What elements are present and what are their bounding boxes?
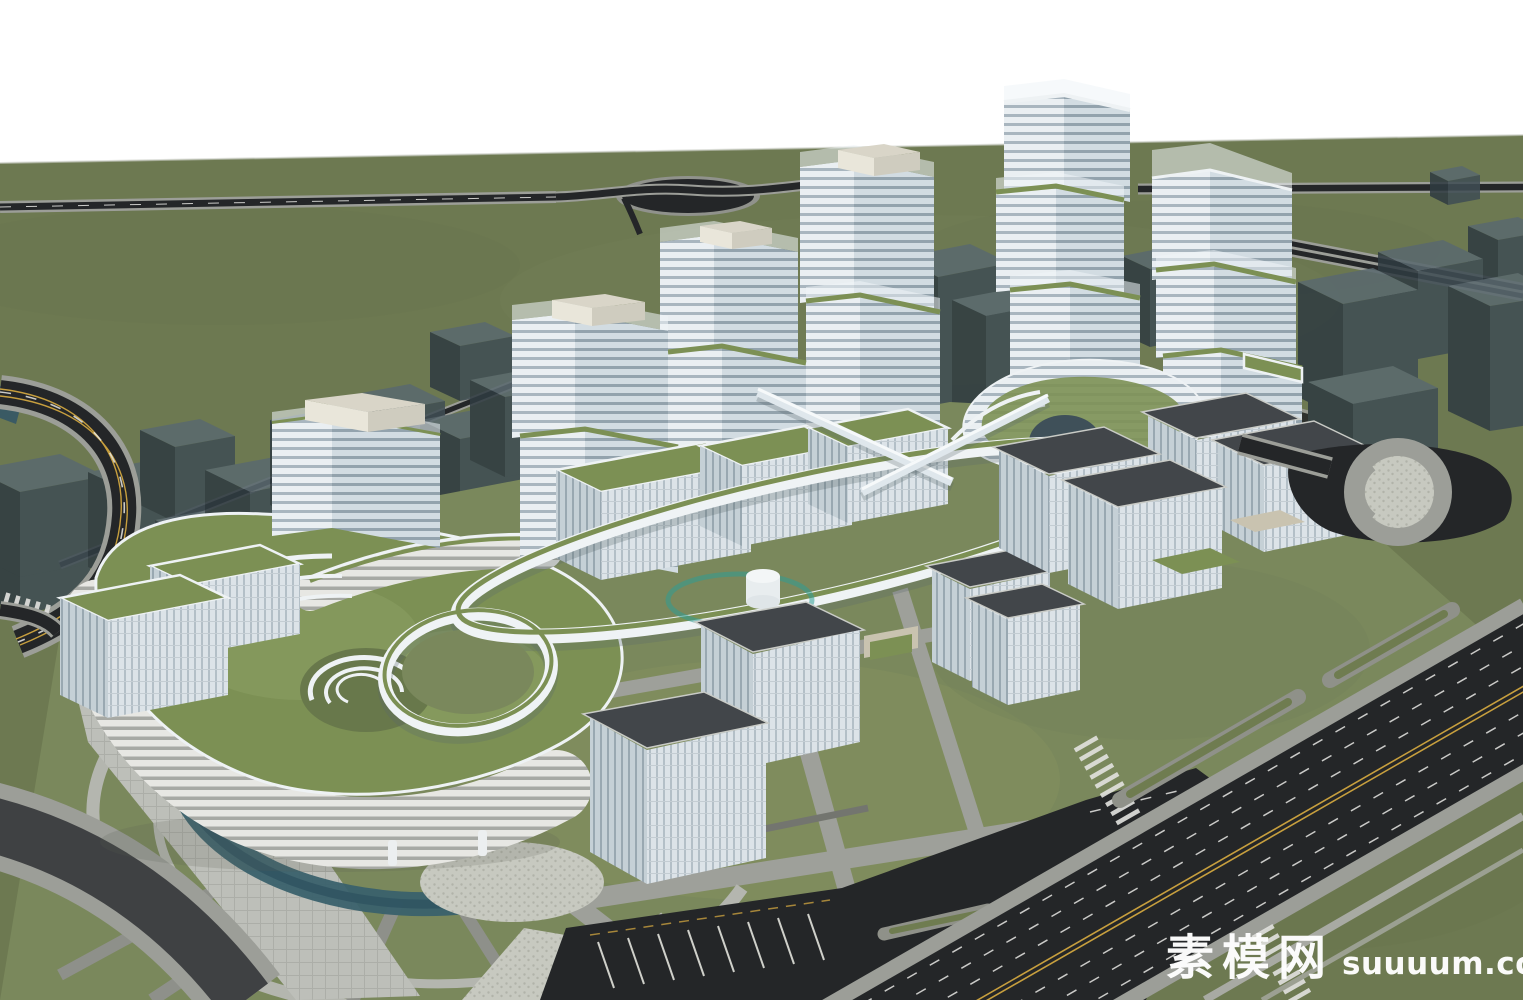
tower-a (272, 393, 440, 548)
masterplan-3d-view: 素模网 suuuum.com (0, 0, 1523, 1000)
tower-e (996, 79, 1140, 402)
architectural-render: 素模网 suuuum.com (0, 0, 1523, 1000)
watermark-domain: suuuum.com (1342, 946, 1523, 982)
watermark-site-name: 素模网 (1166, 930, 1334, 986)
